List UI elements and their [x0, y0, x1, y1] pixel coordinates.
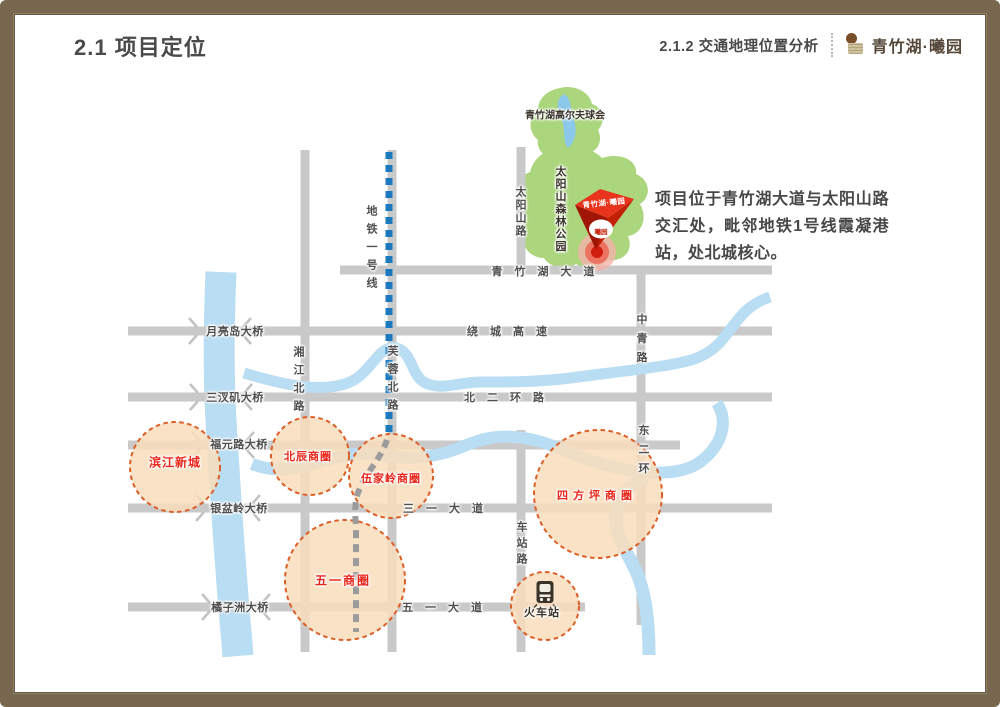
label-road-zhongqing: 中青路 — [633, 314, 649, 371]
label-bridge-yueliangdao: 月亮岛大桥 — [206, 323, 264, 339]
label-golf-park: 青竹湖高尔夫球会 — [525, 107, 605, 122]
slide: 2.1 项目定位 2.1.2 交通地理位置分析 青竹湖·曦园 项目位于青竹湖大道… — [0, 0, 1000, 707]
header-right: 2.1.2 交通地理位置分析 青竹湖·曦园 — [659, 33, 963, 57]
label-forest-park: 太阳山森林公园 — [552, 165, 568, 253]
label-bridge-yinpenling: 银盆岭大桥 — [210, 500, 268, 516]
label-road-sanyi: 三一大道 — [403, 500, 495, 516]
brand-name: 青竹湖·曦园 — [872, 33, 963, 57]
location-description: 项目位于青竹湖大道与太阳山路交汇处，毗邻地铁1号线霞凝港站，处北城核心。 — [655, 186, 889, 267]
label-bridge-juzizhou: 橘子洲大桥 — [211, 599, 269, 615]
label-district-wujialing: 伍家岭商圈 — [361, 470, 421, 486]
header-divider — [831, 33, 833, 57]
page-title: 2.1 项目定位 — [74, 30, 207, 62]
pin-logo-text: 曦园 — [595, 226, 608, 236]
label-district-wuyi: 五一商圈 — [315, 572, 371, 589]
label-road-dongerhuan: 东二环 — [635, 425, 651, 482]
label-road-beierhuan: 北二环路 — [464, 389, 556, 405]
label-road-xiangjiang: 湘江北路 — [290, 346, 306, 418]
section-title: 2.1.2 交通地理位置分析 — [659, 35, 818, 56]
label-road-qingzhuhu: 青竹湖大道 — [492, 263, 607, 279]
label-railway-station: 火车站 — [524, 604, 560, 620]
brand-logo-base — [848, 43, 863, 54]
label-road-chezhan: 车站路 — [513, 521, 529, 569]
label-metro-line1: 地铁一号线 — [363, 205, 379, 295]
label-road-raocheng: 绕城高速 — [467, 323, 559, 339]
north-river — [244, 297, 770, 387]
label-district-beichen: 北辰商圈 — [284, 448, 332, 464]
brand-logo-icon — [845, 33, 864, 57]
label-bridge-fuyuanlu: 福元路大桥 — [210, 436, 268, 452]
label-district-sifangping: 四方坪商圈 — [557, 487, 637, 503]
label-bridge-sanchaji: 三汊矶大桥 — [206, 389, 264, 405]
map-canvas — [0, 0, 1000, 707]
label-road-furong: 芙蓉北路 — [384, 345, 400, 417]
label-road-wuyi: 五一大道 — [402, 599, 494, 615]
label-road-taiyangshan: 太阳山路 — [512, 186, 528, 238]
label-district-binjiang: 滨江新城 — [149, 454, 201, 471]
